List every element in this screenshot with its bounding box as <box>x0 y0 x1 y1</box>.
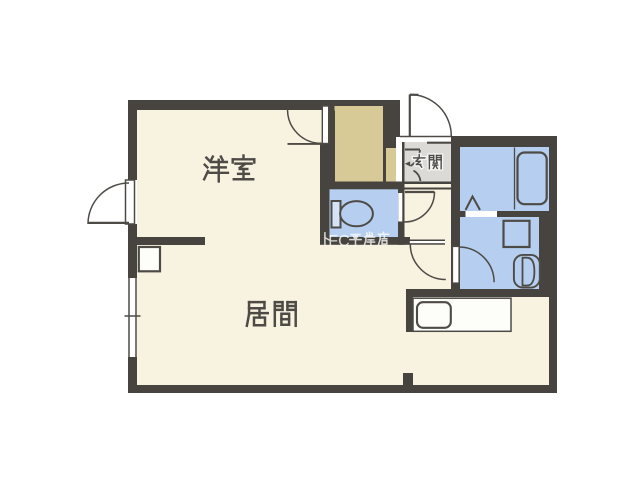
svg-text:FC: FC <box>328 233 349 250</box>
